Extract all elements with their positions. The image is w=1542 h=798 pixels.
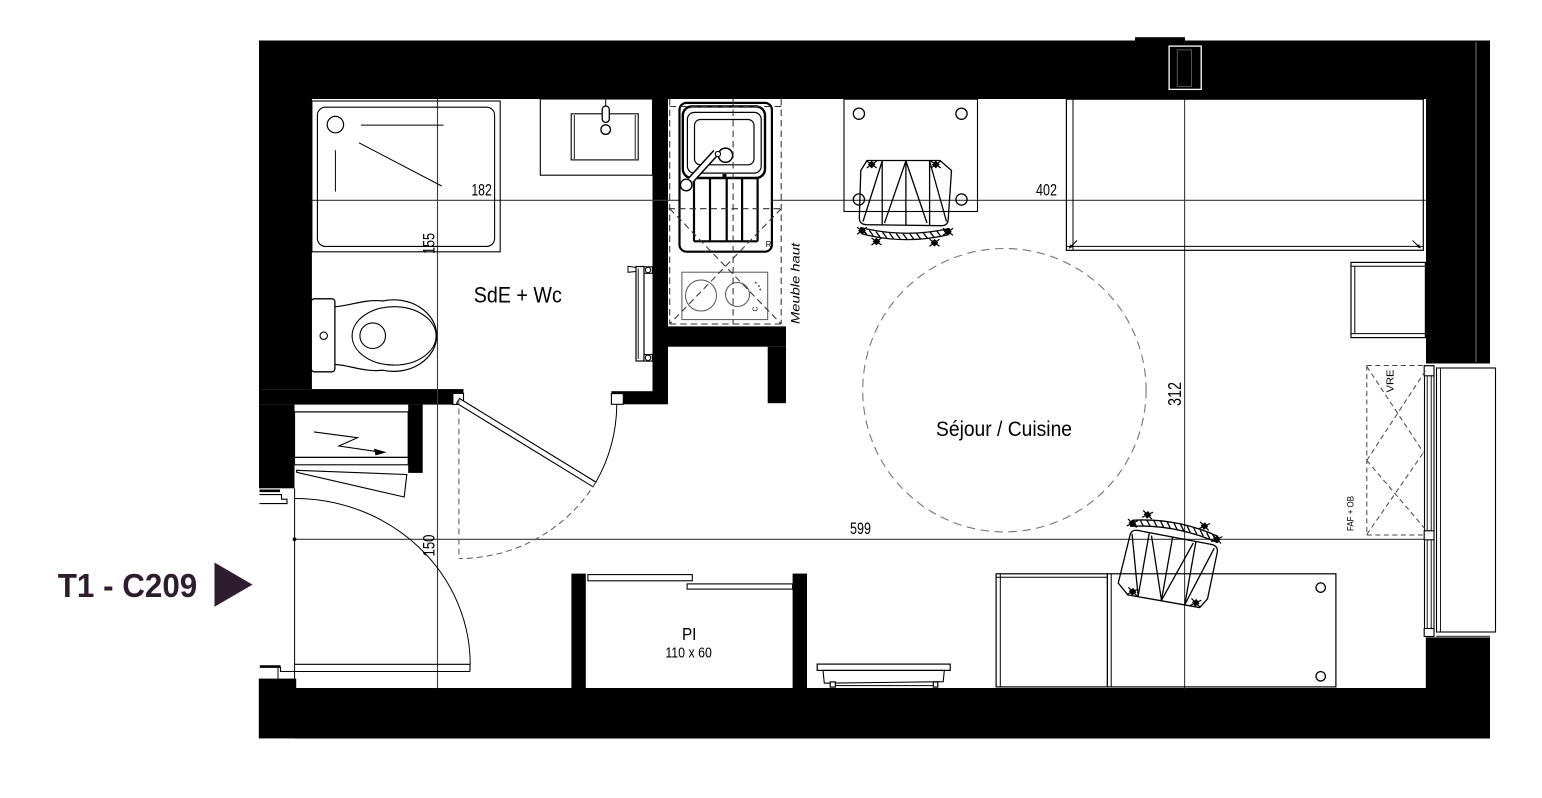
svg-text:T1 - C209: T1 - C209 <box>58 568 198 605</box>
svg-text:FAF + OB: FAF + OB <box>1346 496 1357 531</box>
svg-text:Séjour / Cuisine: Séjour / Cuisine <box>936 418 1072 441</box>
svg-text:155: 155 <box>419 233 438 254</box>
svg-text:182: 182 <box>471 180 492 199</box>
svg-text:SdE + Wc: SdE + Wc <box>474 282 562 307</box>
svg-text:C: C <box>753 306 760 311</box>
svg-text:110 x 60: 110 x 60 <box>665 645 712 661</box>
svg-text:PI: PI <box>682 624 697 644</box>
svg-text:Meuble haut: Meuble haut <box>791 242 803 324</box>
svg-text:312: 312 <box>1165 382 1185 406</box>
svg-text:599: 599 <box>850 519 871 538</box>
svg-text:VRE: VRE <box>1385 370 1397 393</box>
svg-text:402: 402 <box>1036 180 1057 199</box>
svg-text:150: 150 <box>419 535 438 557</box>
svg-text:R: R <box>766 239 772 249</box>
